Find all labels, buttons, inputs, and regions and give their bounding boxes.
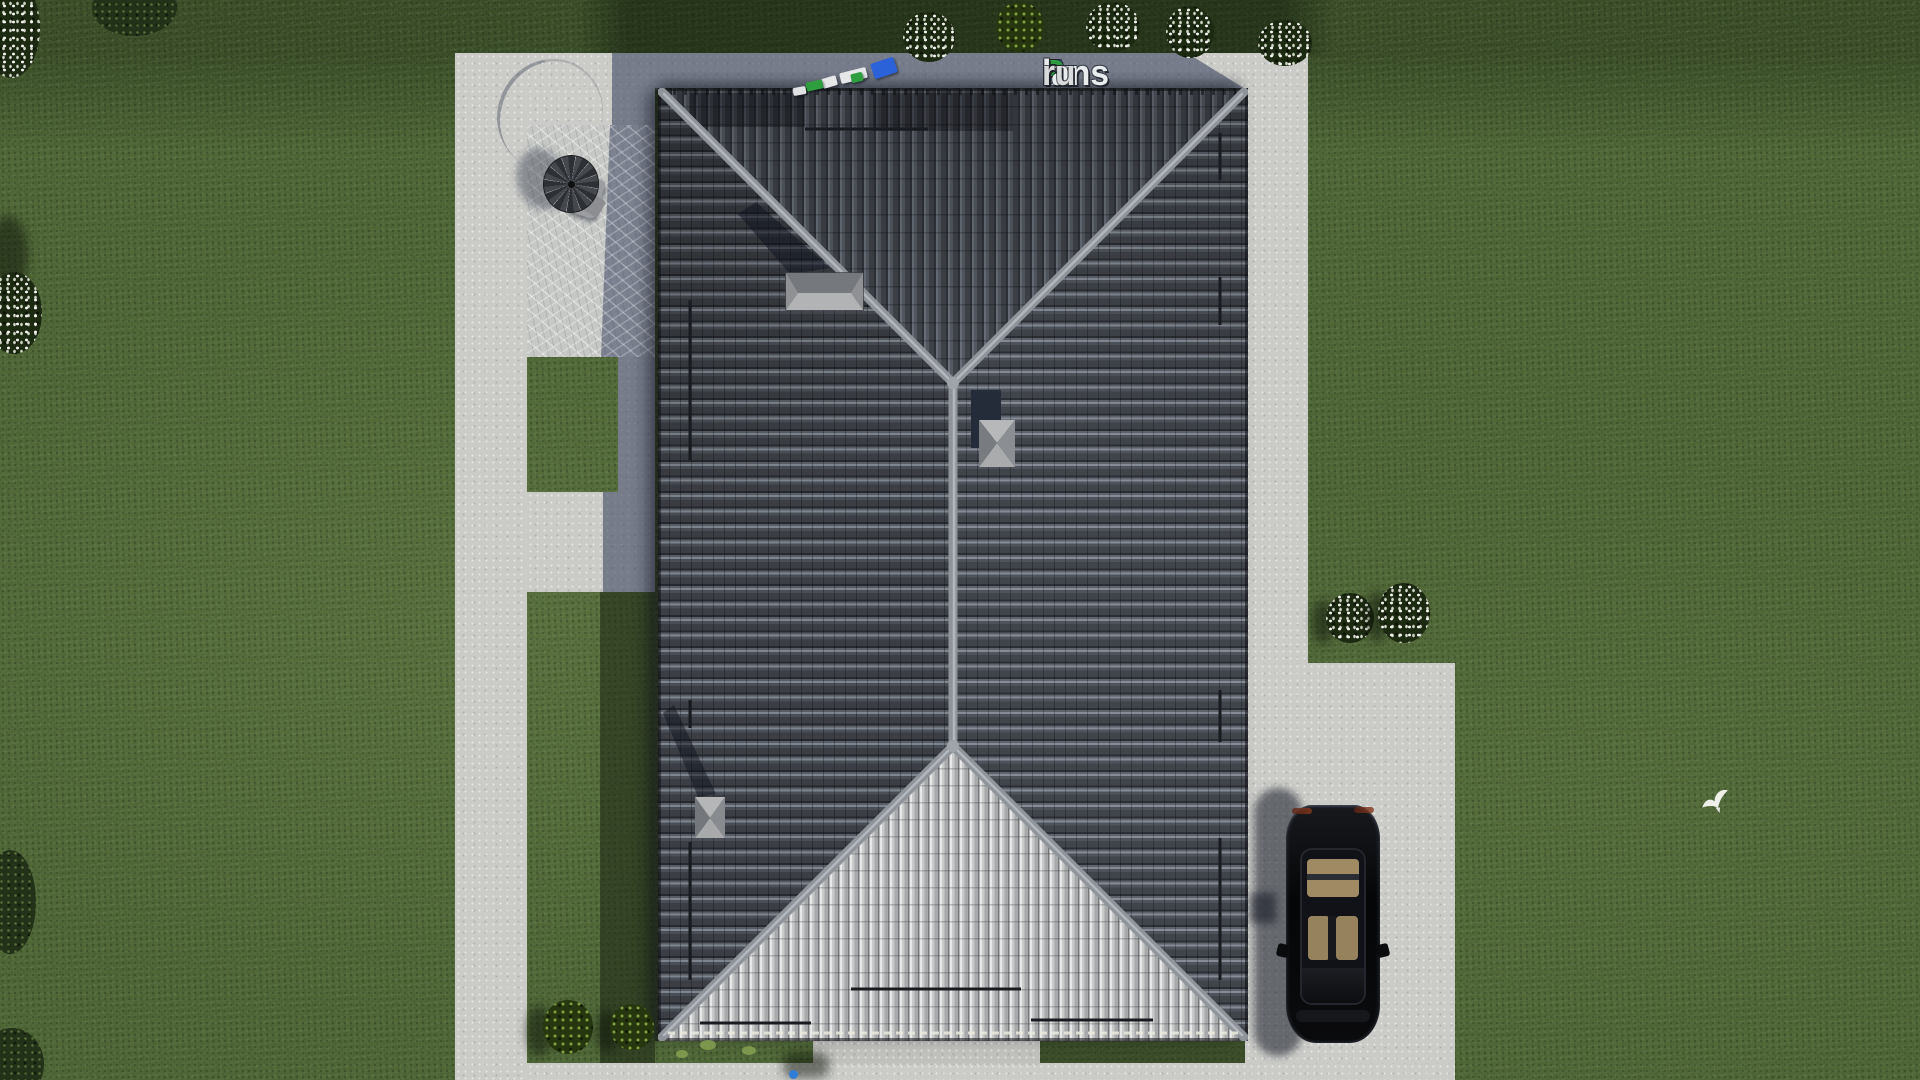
chimney	[786, 273, 863, 310]
watermark-segment: ru	[1042, 52, 1075, 94]
white-bush-top-3	[1166, 6, 1214, 58]
white-bush-top-4	[1258, 20, 1312, 66]
white-bush-driveway-2	[1378, 583, 1430, 643]
parasol-pole	[568, 181, 575, 188]
west-vent	[663, 705, 725, 838]
car	[1286, 805, 1380, 1043]
side-path	[618, 357, 655, 492]
bottom-path-strip	[527, 1063, 1455, 1080]
car-front-seat-left	[1308, 916, 1330, 960]
car-dashboard	[1302, 968, 1366, 1004]
ridge-vent	[971, 390, 1015, 467]
green-bush-bottom-2	[610, 1004, 654, 1050]
aerial-render-scene: FixPlans.ru	[0, 0, 1920, 1080]
shadow	[612, 88, 655, 128]
connector-path	[527, 492, 655, 592]
grass-tuft	[700, 1040, 716, 1050]
car-mirror-shadow	[1250, 893, 1276, 923]
green-bush-top	[996, 2, 1044, 52]
blue-garden-item	[789, 1070, 798, 1079]
west-walkway	[455, 53, 527, 1080]
green-bush-bottom-1	[543, 1000, 593, 1054]
grass-tuft	[742, 1046, 756, 1055]
car-windshield	[1296, 1010, 1370, 1022]
shadow	[603, 492, 655, 592]
car-taillight-left	[1292, 808, 1312, 814]
white-bush-top-1	[903, 12, 955, 62]
house-hip-roof	[655, 88, 1245, 1041]
car-taillight-right	[1354, 807, 1374, 813]
roof-details	[658, 88, 1248, 1041]
white-bird	[1698, 786, 1734, 818]
car-seat-gap	[1307, 874, 1359, 880]
car-front-seat-right	[1336, 916, 1358, 960]
white-bush-top-2	[1086, 2, 1140, 52]
house-shadow-on-grass-pocket	[600, 592, 655, 1063]
grass-tuft	[676, 1050, 688, 1058]
shadow	[618, 357, 655, 492]
house-shadow-on-top-lawn	[575, 0, 1335, 56]
car-glass-roof	[1300, 848, 1366, 1005]
car-console	[1328, 916, 1336, 960]
